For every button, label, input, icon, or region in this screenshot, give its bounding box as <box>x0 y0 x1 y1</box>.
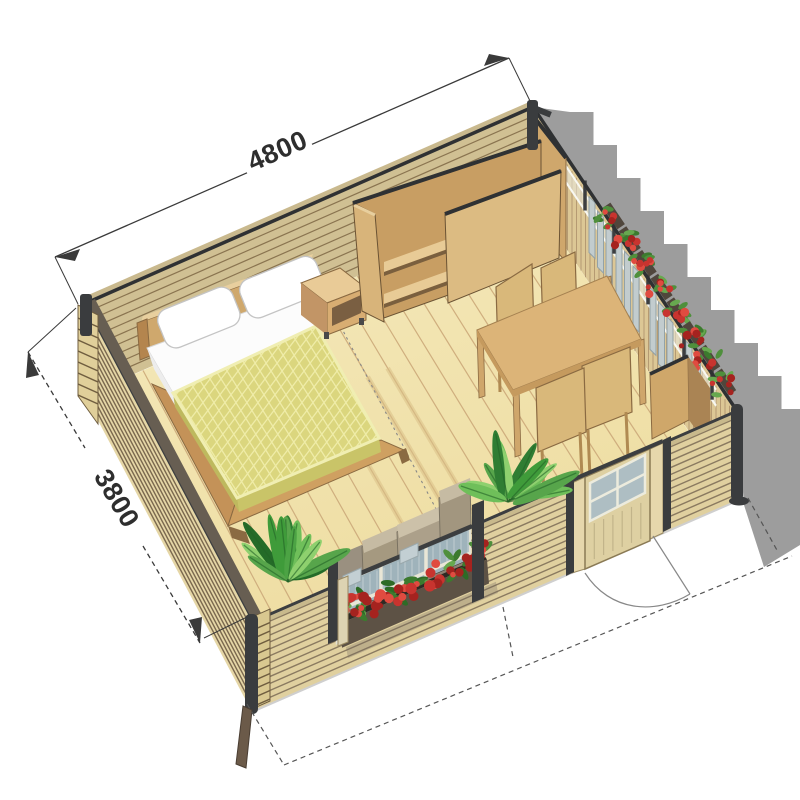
svg-text:4800: 4800 <box>243 125 312 177</box>
